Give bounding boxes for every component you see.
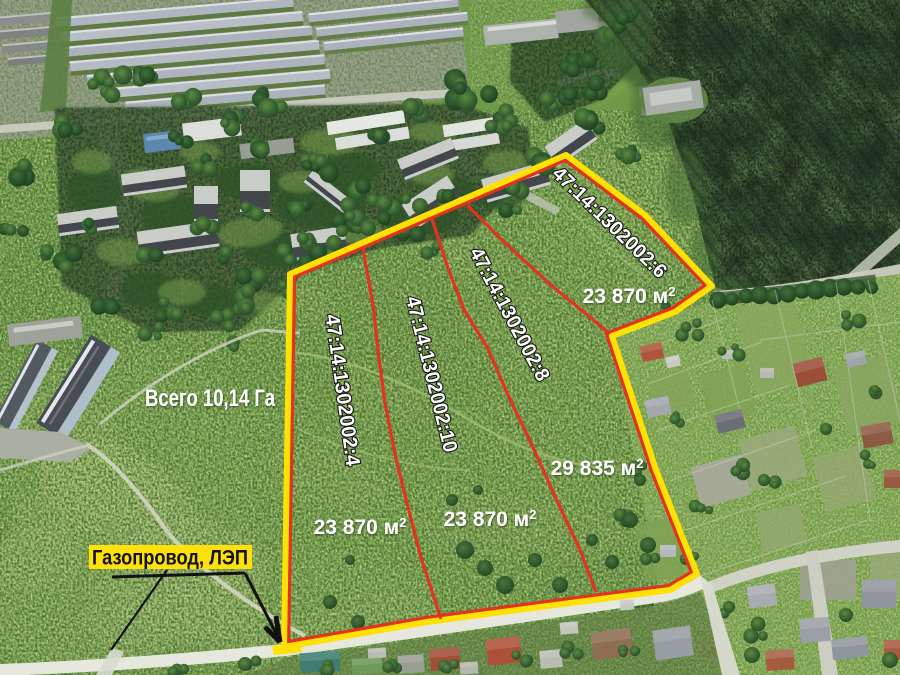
svg-text:23 870 м2: 23 870 м2 bbox=[314, 515, 407, 539]
svg-text:Газопровод, ЛЭП: Газопровод, ЛЭП bbox=[92, 547, 248, 570]
svg-text:23 870 м2: 23 870 м2 bbox=[444, 507, 537, 531]
svg-text:23 870 м2: 23 870 м2 bbox=[583, 284, 676, 308]
svg-text:Всего 10,14 Га: Всего 10,14 Га bbox=[145, 385, 275, 412]
svg-text:29 835 м2: 29 835 м2 bbox=[551, 456, 644, 480]
